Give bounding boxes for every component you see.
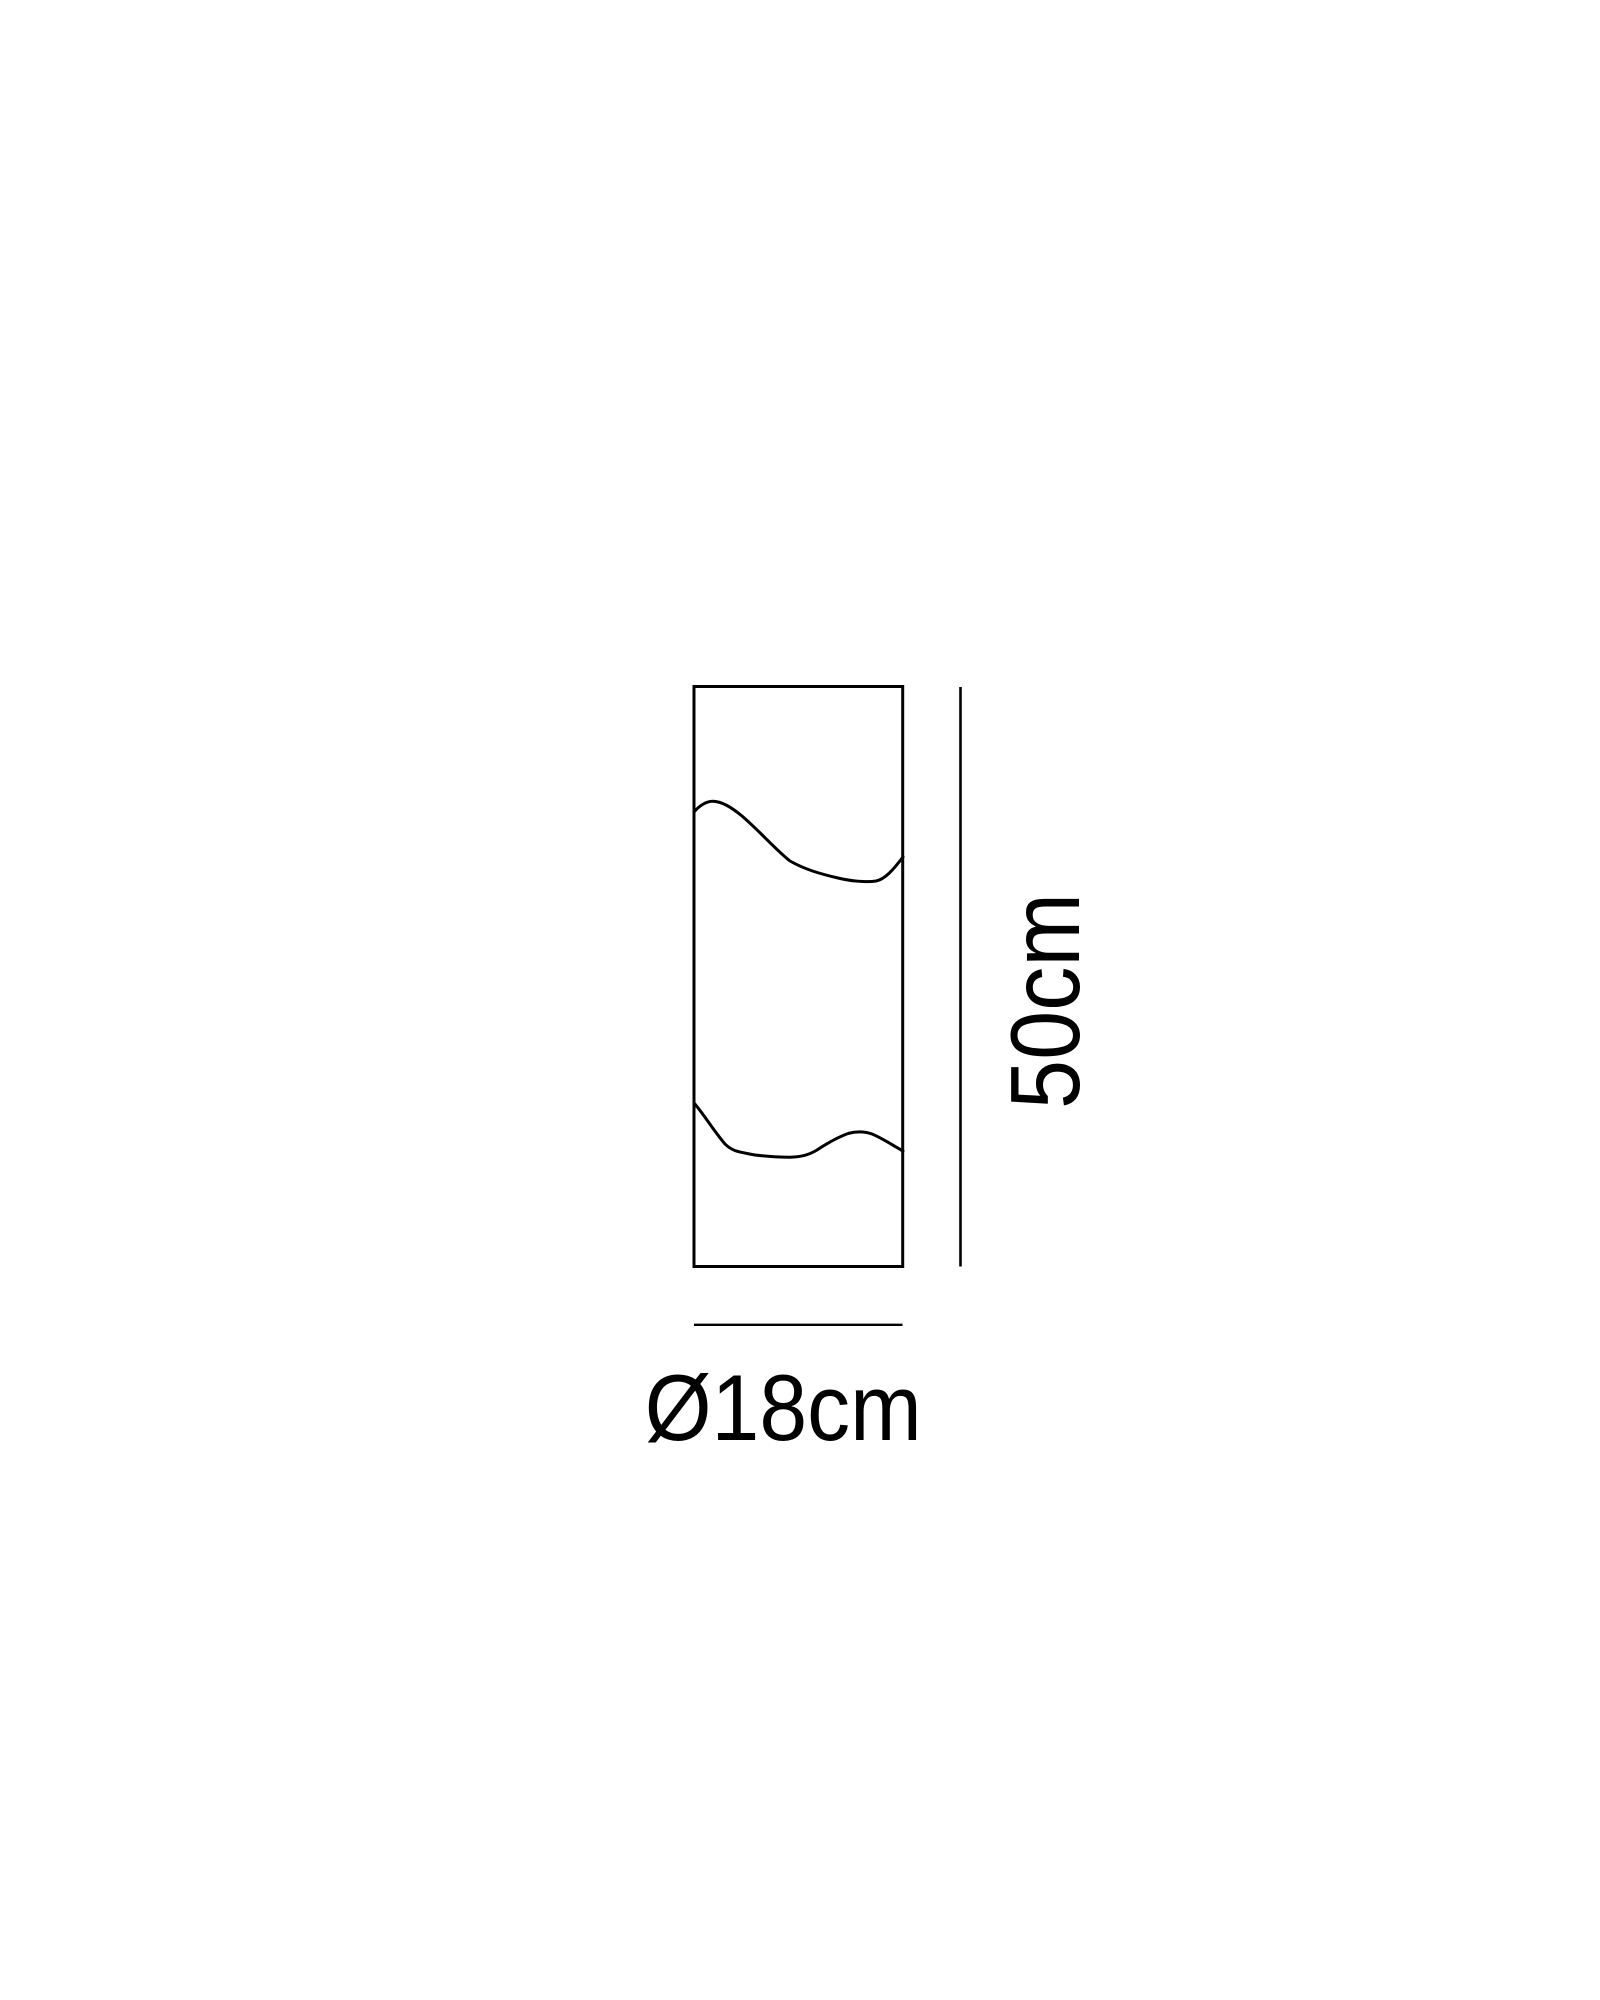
- svg-text:Ø18cm: Ø18cm: [645, 1355, 922, 1460]
- svg-text:50cm: 50cm: [990, 893, 1100, 1109]
